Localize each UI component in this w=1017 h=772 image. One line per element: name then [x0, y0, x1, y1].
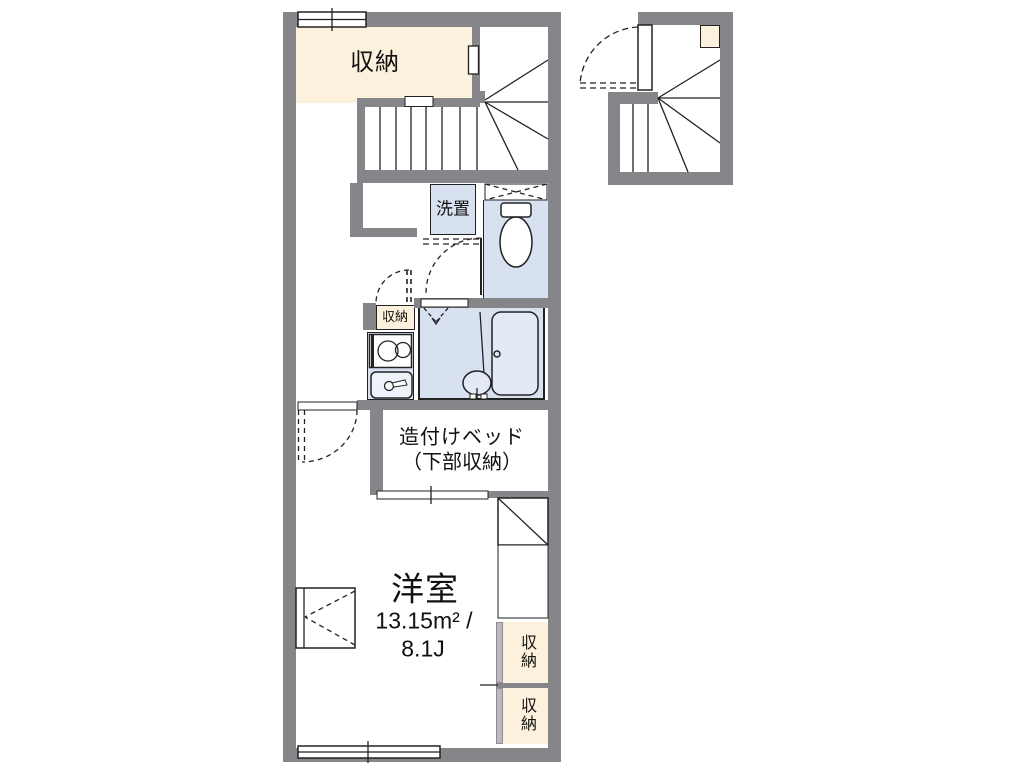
entrance-stairs — [633, 60, 720, 172]
bed-edge — [377, 486, 488, 504]
toilet-door — [426, 238, 481, 295]
bath-unit — [418, 305, 545, 400]
kitchen-unit — [367, 332, 414, 400]
wall-hall-storage-stub — [363, 303, 376, 330]
wall-washroom-horiz — [350, 228, 417, 237]
stair-winder-post — [475, 91, 485, 103]
closet-lower-sliding-door — [496, 688, 503, 744]
wall-closet-divider — [496, 683, 548, 688]
wall-left — [283, 12, 296, 762]
closet-upper-label: 収納 — [514, 634, 538, 670]
washer-label: 洗置 — [436, 198, 470, 219]
hall-storage-label: 収納 — [382, 309, 408, 325]
main-room-name: 洋室 — [391, 568, 459, 609]
closet-lower-label: 収納 — [514, 697, 538, 733]
bed-label-line1: 造付けベッド — [399, 426, 525, 451]
wall-stair-left — [357, 98, 365, 170]
wall-bed-left — [370, 410, 383, 495]
bedroom-door — [298, 402, 357, 462]
entrance-wall-left — [608, 92, 620, 185]
entrance-wall-stub — [608, 92, 658, 104]
side-window — [296, 588, 355, 648]
closet-upper-sliding-door — [496, 622, 503, 683]
entrance-wall-top — [638, 12, 733, 25]
storage-top-label: 収納 — [350, 48, 400, 78]
main-room-area-sqm: 13.15m² / — [375, 607, 472, 636]
wall-right — [548, 12, 561, 762]
washroom-entry-door — [376, 270, 411, 303]
toilet-louver-window — [485, 184, 547, 200]
wall-storage-bottom — [357, 98, 480, 107]
main-room-area-tatami: 8.1J — [401, 635, 444, 664]
toilet-room — [483, 200, 548, 300]
wall-bath-top — [414, 298, 561, 308]
wall-top — [283, 12, 561, 27]
entrance-wall-bottom — [608, 172, 733, 185]
wall-bed-bottom — [488, 491, 561, 498]
entrance-shoe-box — [700, 25, 720, 48]
entrance-wall-right — [720, 12, 733, 185]
wall-bottom — [283, 748, 561, 762]
washroom-track — [423, 239, 480, 244]
wall-stair-bottom — [357, 170, 561, 183]
bed-label-line2: （下部収納） — [402, 451, 522, 476]
wall-kitchen-bottom — [357, 400, 561, 410]
floor-plan-canvas: 収納 洗置 収納 造付けベッド （下部収納） 洋室 13.15m² / 8.1J… — [0, 0, 1017, 772]
entrance-door — [580, 25, 652, 90]
